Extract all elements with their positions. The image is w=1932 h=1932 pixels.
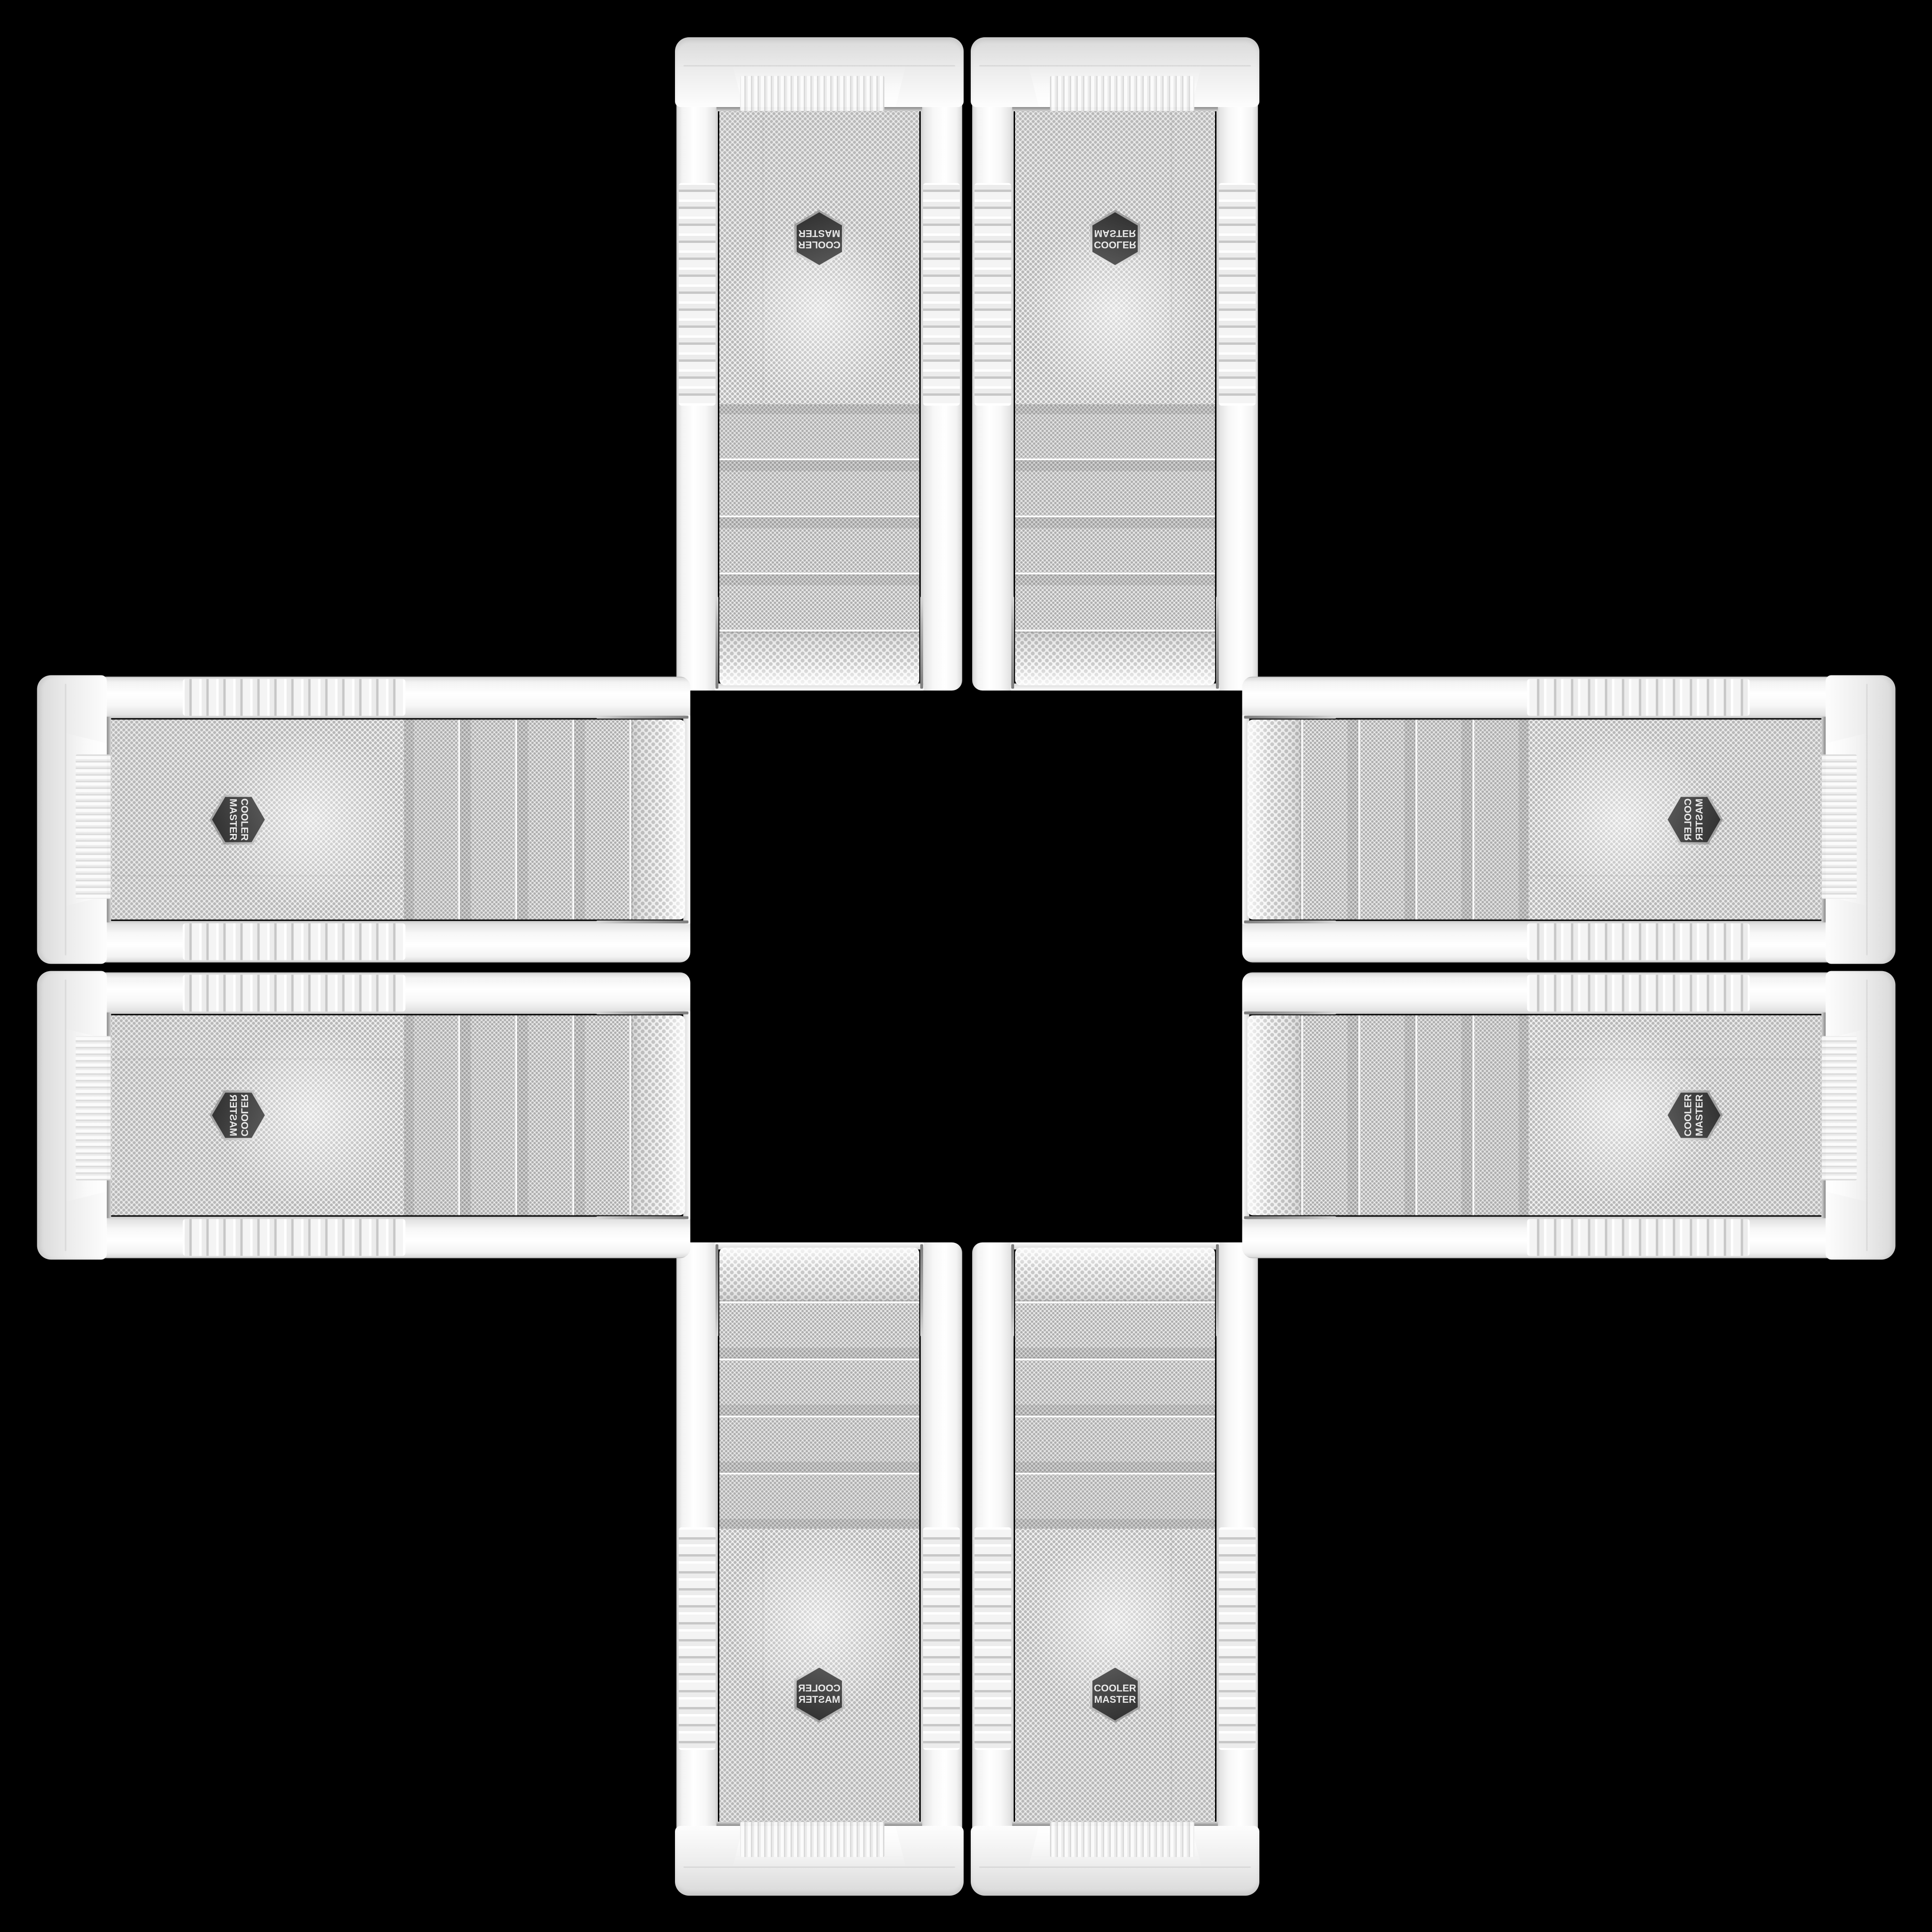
case-side-rail-right [1242, 921, 1837, 963]
pc-case: COOLER MASTER [678, 37, 961, 691]
case-side-rail-left [972, 1242, 1014, 1838]
drive-bay-covers [719, 1300, 919, 1529]
cap-groove [1866, 684, 1867, 955]
cooler-master-logo: COOLER MASTER [1665, 795, 1723, 845]
front-mesh-panel: COOLER MASTER [111, 720, 404, 920]
logo-text-line2: MASTER [799, 227, 841, 239]
case-side-rail-right [1242, 973, 1837, 1014]
cap-groove [65, 980, 66, 1251]
side-grip-fins [679, 1527, 716, 1750]
drive-bay-covers [719, 404, 919, 633]
side-grip-fins [974, 1527, 1011, 1750]
top-vent-mesh [719, 1248, 919, 1300]
logo-badge-face: COOLER MASTER [212, 797, 265, 842]
cap-groove [1866, 980, 1867, 1251]
front-mesh-panel: COOLER MASTER [1015, 111, 1215, 404]
logo-text-line2: MASTER [1694, 799, 1705, 841]
case-side-rail-right [676, 1242, 718, 1838]
side-grip-fins [183, 1219, 405, 1256]
chrome-trim-right [716, 597, 718, 689]
side-grip-fins [183, 924, 405, 960]
logo-text-line2: MASTER [1694, 1094, 1705, 1136]
logo-text-line1: COOLER [1682, 1094, 1694, 1137]
cap-rib-texture [75, 755, 110, 899]
drive-bay-covers [404, 720, 632, 920]
drive-bay-covers [1300, 720, 1528, 920]
cap-groove [683, 1866, 955, 1868]
drive-bay-covers [1300, 1016, 1528, 1216]
case-bottom-right: COOLER MASTER [974, 1242, 1257, 1895]
logo-badge-face: COOLER MASTER [1667, 1093, 1720, 1138]
cap-groove [979, 65, 1250, 67]
logo-text-line2: MASTER [1094, 1694, 1136, 1706]
case-side-rail-left [1242, 677, 1837, 718]
bottom-cap [1825, 971, 1895, 1260]
case-top-left: COOLER MASTER [678, 37, 961, 690]
side-grip-fins [679, 183, 716, 406]
chrome-trim-right [1244, 1012, 1336, 1015]
cooler-master-logo: COOLER MASTER [794, 210, 844, 267]
case-right-bottom: COOLER MASTER [1242, 974, 1895, 1257]
case-side-rail-left [95, 1217, 690, 1258]
chrome-trim-right [596, 921, 688, 924]
case-side-rail-right [676, 95, 718, 691]
cap-rib-texture [1822, 1036, 1857, 1181]
logo-badge-face: COOLER MASTER [797, 212, 842, 265]
logo-text-line1: COOLER [798, 239, 841, 250]
front-mesh-panel: COOLER MASTER [719, 1529, 919, 1822]
logo-badge-face: COOLER MASTER [797, 1668, 842, 1721]
side-grip-fins [183, 679, 405, 716]
side-grip-fins [974, 183, 1011, 406]
pc-case: COOLER MASTER [974, 1242, 1257, 1896]
chrome-trim-left [596, 716, 688, 719]
chrome-trim-left [920, 1244, 923, 1336]
chrome-trim-left [920, 597, 923, 689]
cap-rib-texture [75, 1036, 110, 1181]
logo-text-line1: COOLER [238, 799, 250, 841]
logo-badge-face: COOLER MASTER [212, 1093, 265, 1138]
side-grip-fins [923, 183, 960, 406]
case-side-rail-right [95, 921, 690, 963]
case-side-rail-left [921, 95, 962, 691]
chrome-trim-right [1216, 597, 1219, 689]
logo-text-line2: MASTER [1094, 227, 1136, 239]
logo-badge-face: COOLER MASTER [1092, 212, 1138, 265]
logo-text-line2: MASTER [227, 799, 238, 841]
case-side-rail-left [1242, 1217, 1837, 1258]
bottom-cap [675, 37, 964, 107]
cap-groove [65, 684, 66, 955]
side-grip-fins [183, 975, 405, 1012]
side-grip-fins [1219, 1527, 1256, 1750]
cap-rib-texture [1822, 755, 1857, 899]
case-top-right: COOLER MASTER [974, 37, 1257, 690]
front-mesh-panel: COOLER MASTER [719, 111, 919, 404]
logo-text-line2: MASTER [799, 1694, 841, 1706]
drive-bay-covers [1015, 1300, 1215, 1529]
case-side-rail-right [1216, 95, 1258, 691]
side-grip-fins [923, 1527, 960, 1750]
logo-badge-face: COOLER MASTER [1667, 797, 1720, 842]
side-grip-fins [1527, 679, 1749, 716]
case-left-top: COOLER MASTER [37, 678, 690, 961]
logo-text-line2: MASTER [227, 1094, 238, 1136]
pc-case: COOLER MASTER [37, 678, 690, 961]
top-vent-mesh [632, 720, 685, 920]
case-right-top: COOLER MASTER [1242, 678, 1895, 961]
cap-rib-texture [1050, 1822, 1194, 1857]
case-side-rail-right [95, 973, 690, 1014]
chrome-trim-left [1244, 716, 1336, 719]
cooler-master-logo: COOLER MASTER [1090, 210, 1140, 267]
bottom-cap [1825, 675, 1895, 964]
cooler-master-logo: COOLER MASTER [1090, 1666, 1140, 1723]
cooler-master-logo: COOLER MASTER [209, 1091, 267, 1141]
case-side-rail-left [972, 95, 1014, 691]
cooler-master-logo: COOLER MASTER [209, 795, 267, 845]
case-side-rail-left [921, 1242, 962, 1838]
cooler-master-logo: COOLER MASTER [794, 1666, 844, 1723]
bottom-cap [37, 675, 107, 964]
top-vent-mesh [1015, 1248, 1215, 1300]
logo-text-line1: COOLER [798, 1683, 841, 1694]
front-mesh-panel: COOLER MASTER [111, 1016, 404, 1216]
front-mesh-panel: COOLER MASTER [1015, 1529, 1215, 1822]
pc-case: COOLER MASTER [974, 37, 1257, 691]
drive-bay-covers [404, 1016, 632, 1216]
bottom-cap [37, 971, 107, 1260]
bottom-cap [971, 1826, 1259, 1896]
chrome-trim-left [1011, 597, 1014, 689]
pc-case: COOLER MASTER [1242, 974, 1895, 1257]
chrome-trim-right [596, 1012, 688, 1015]
pc-case: COOLER MASTER [37, 974, 690, 1257]
side-grip-fins [1219, 183, 1256, 406]
top-vent-mesh [719, 633, 919, 685]
chrome-trim-left [1244, 1216, 1336, 1219]
drive-bay-covers [1015, 404, 1215, 633]
side-grip-fins [1527, 975, 1749, 1012]
logo-badge-face: COOLER MASTER [1092, 1668, 1138, 1721]
top-vent-mesh [1247, 720, 1300, 920]
case-side-rail-right [1216, 1242, 1258, 1838]
cap-rib-texture [1050, 76, 1194, 111]
chrome-trim-right [1244, 921, 1336, 924]
chrome-trim-left [596, 1216, 688, 1219]
cap-rib-texture [740, 76, 884, 111]
cap-rib-texture [740, 1822, 884, 1857]
top-vent-mesh [1247, 1016, 1300, 1216]
chrome-trim-right [1216, 1244, 1219, 1336]
logo-text-line1: COOLER [1094, 1683, 1136, 1694]
top-vent-mesh [1015, 633, 1215, 685]
logo-text-line1: COOLER [238, 1094, 250, 1137]
side-grip-fins [1527, 924, 1749, 960]
bottom-cap [675, 1826, 964, 1896]
side-grip-fins [1527, 1219, 1749, 1256]
front-mesh-panel: COOLER MASTER [1528, 1016, 1821, 1216]
collage-canvas: COOLER MASTER [0, 0, 1932, 1932]
pc-case: COOLER MASTER [1242, 678, 1895, 961]
case-left-bottom: COOLER MASTER [37, 974, 690, 1257]
chrome-trim-left [1011, 1244, 1014, 1336]
bottom-cap [971, 37, 1259, 107]
top-vent-mesh [632, 1016, 685, 1216]
case-bottom-left: COOLER MASTER [678, 1242, 961, 1895]
case-side-rail-left [95, 677, 690, 718]
cooler-master-logo: COOLER MASTER [1665, 1091, 1723, 1141]
cap-groove [979, 1866, 1250, 1868]
cap-groove [683, 65, 955, 67]
chrome-trim-right [716, 1244, 718, 1336]
front-mesh-panel: COOLER MASTER [1528, 720, 1821, 920]
logo-text-line1: COOLER [1682, 799, 1694, 841]
logo-text-line1: COOLER [1094, 239, 1136, 250]
pc-case: COOLER MASTER [678, 1242, 961, 1896]
